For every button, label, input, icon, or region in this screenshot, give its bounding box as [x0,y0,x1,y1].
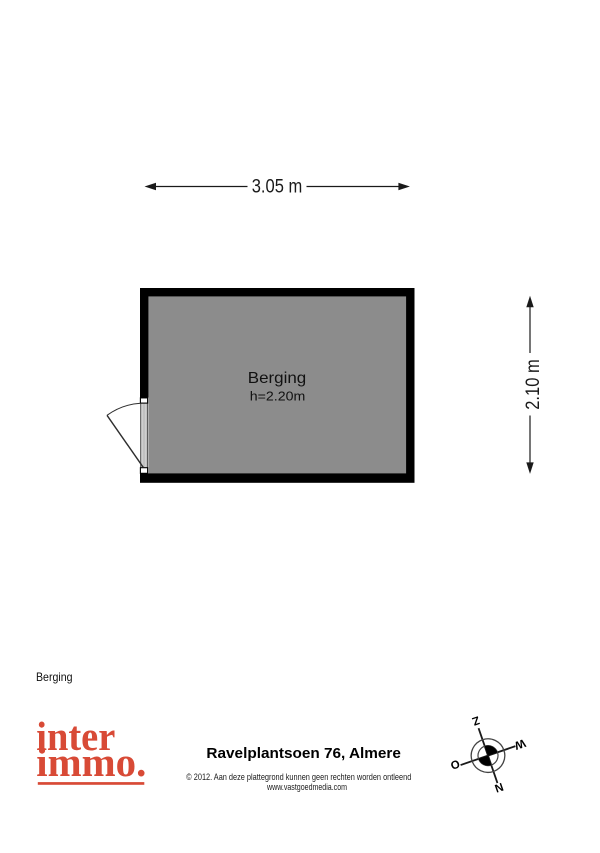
svg-text:© 2012. Aan deze plattegrond k: © 2012. Aan deze plattegrond kunnen geen… [186,772,411,782]
svg-text:3.05 m: 3.05 m [252,175,303,197]
svg-text:www.vastgoedmedia.com: www.vastgoedmedia.com [266,782,347,792]
svg-text:Berging: Berging [248,370,307,387]
svg-text:immo.: immo. [36,739,146,785]
svg-text:h=2.20m: h=2.20m [250,389,306,404]
svg-text:2.10 m: 2.10 m [522,359,544,410]
svg-text:Berging: Berging [36,671,73,684]
svg-text:Ravelplantsoen 76, Almere: Ravelplantsoen 76, Almere [206,745,401,762]
